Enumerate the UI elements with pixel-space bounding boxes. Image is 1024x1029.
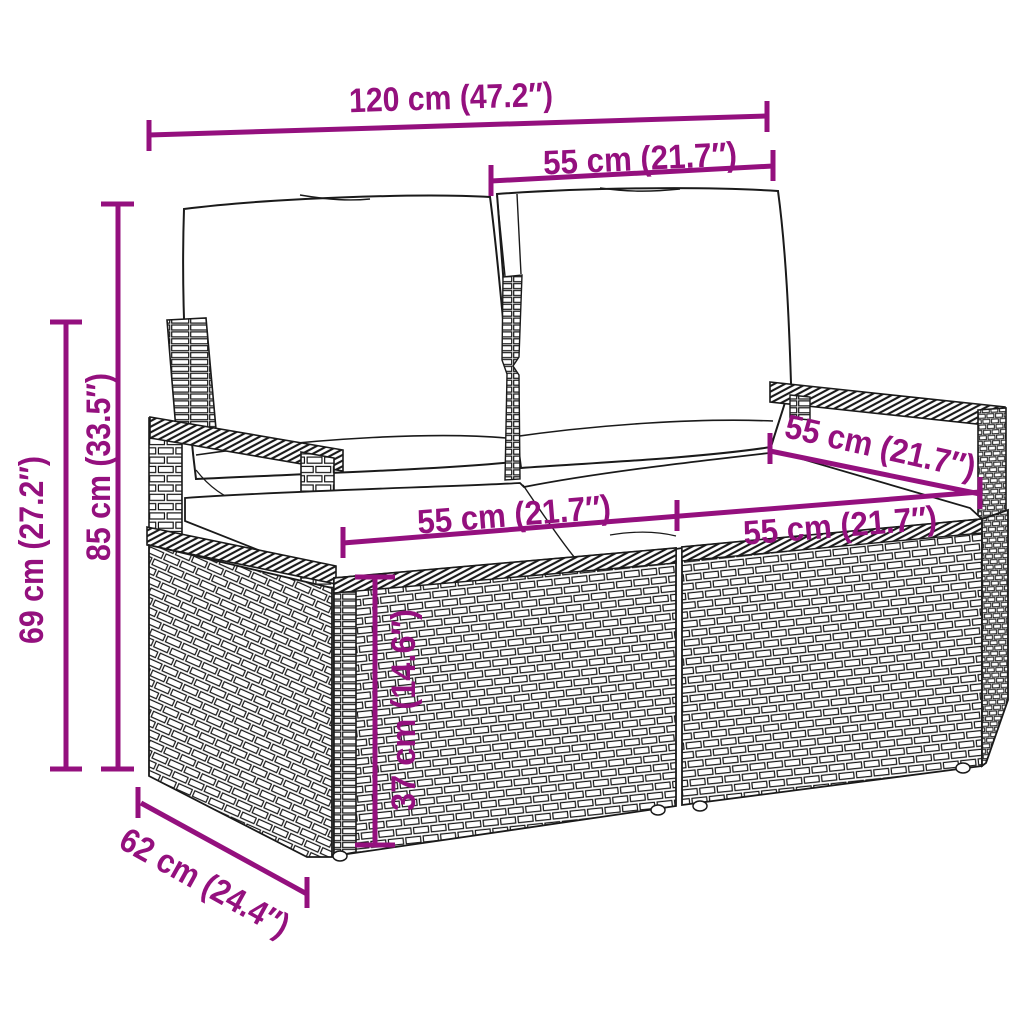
svg-text:37 cm (14.6″): 37 cm (14.6″) [385, 609, 423, 811]
svg-text:120 cm (47.2″): 120 cm (47.2″) [348, 76, 553, 120]
svg-text:85 cm (33.5″): 85 cm (33.5″) [80, 373, 118, 561]
svg-text:69 cm (27.2″): 69 cm (27.2″) [13, 456, 51, 644]
